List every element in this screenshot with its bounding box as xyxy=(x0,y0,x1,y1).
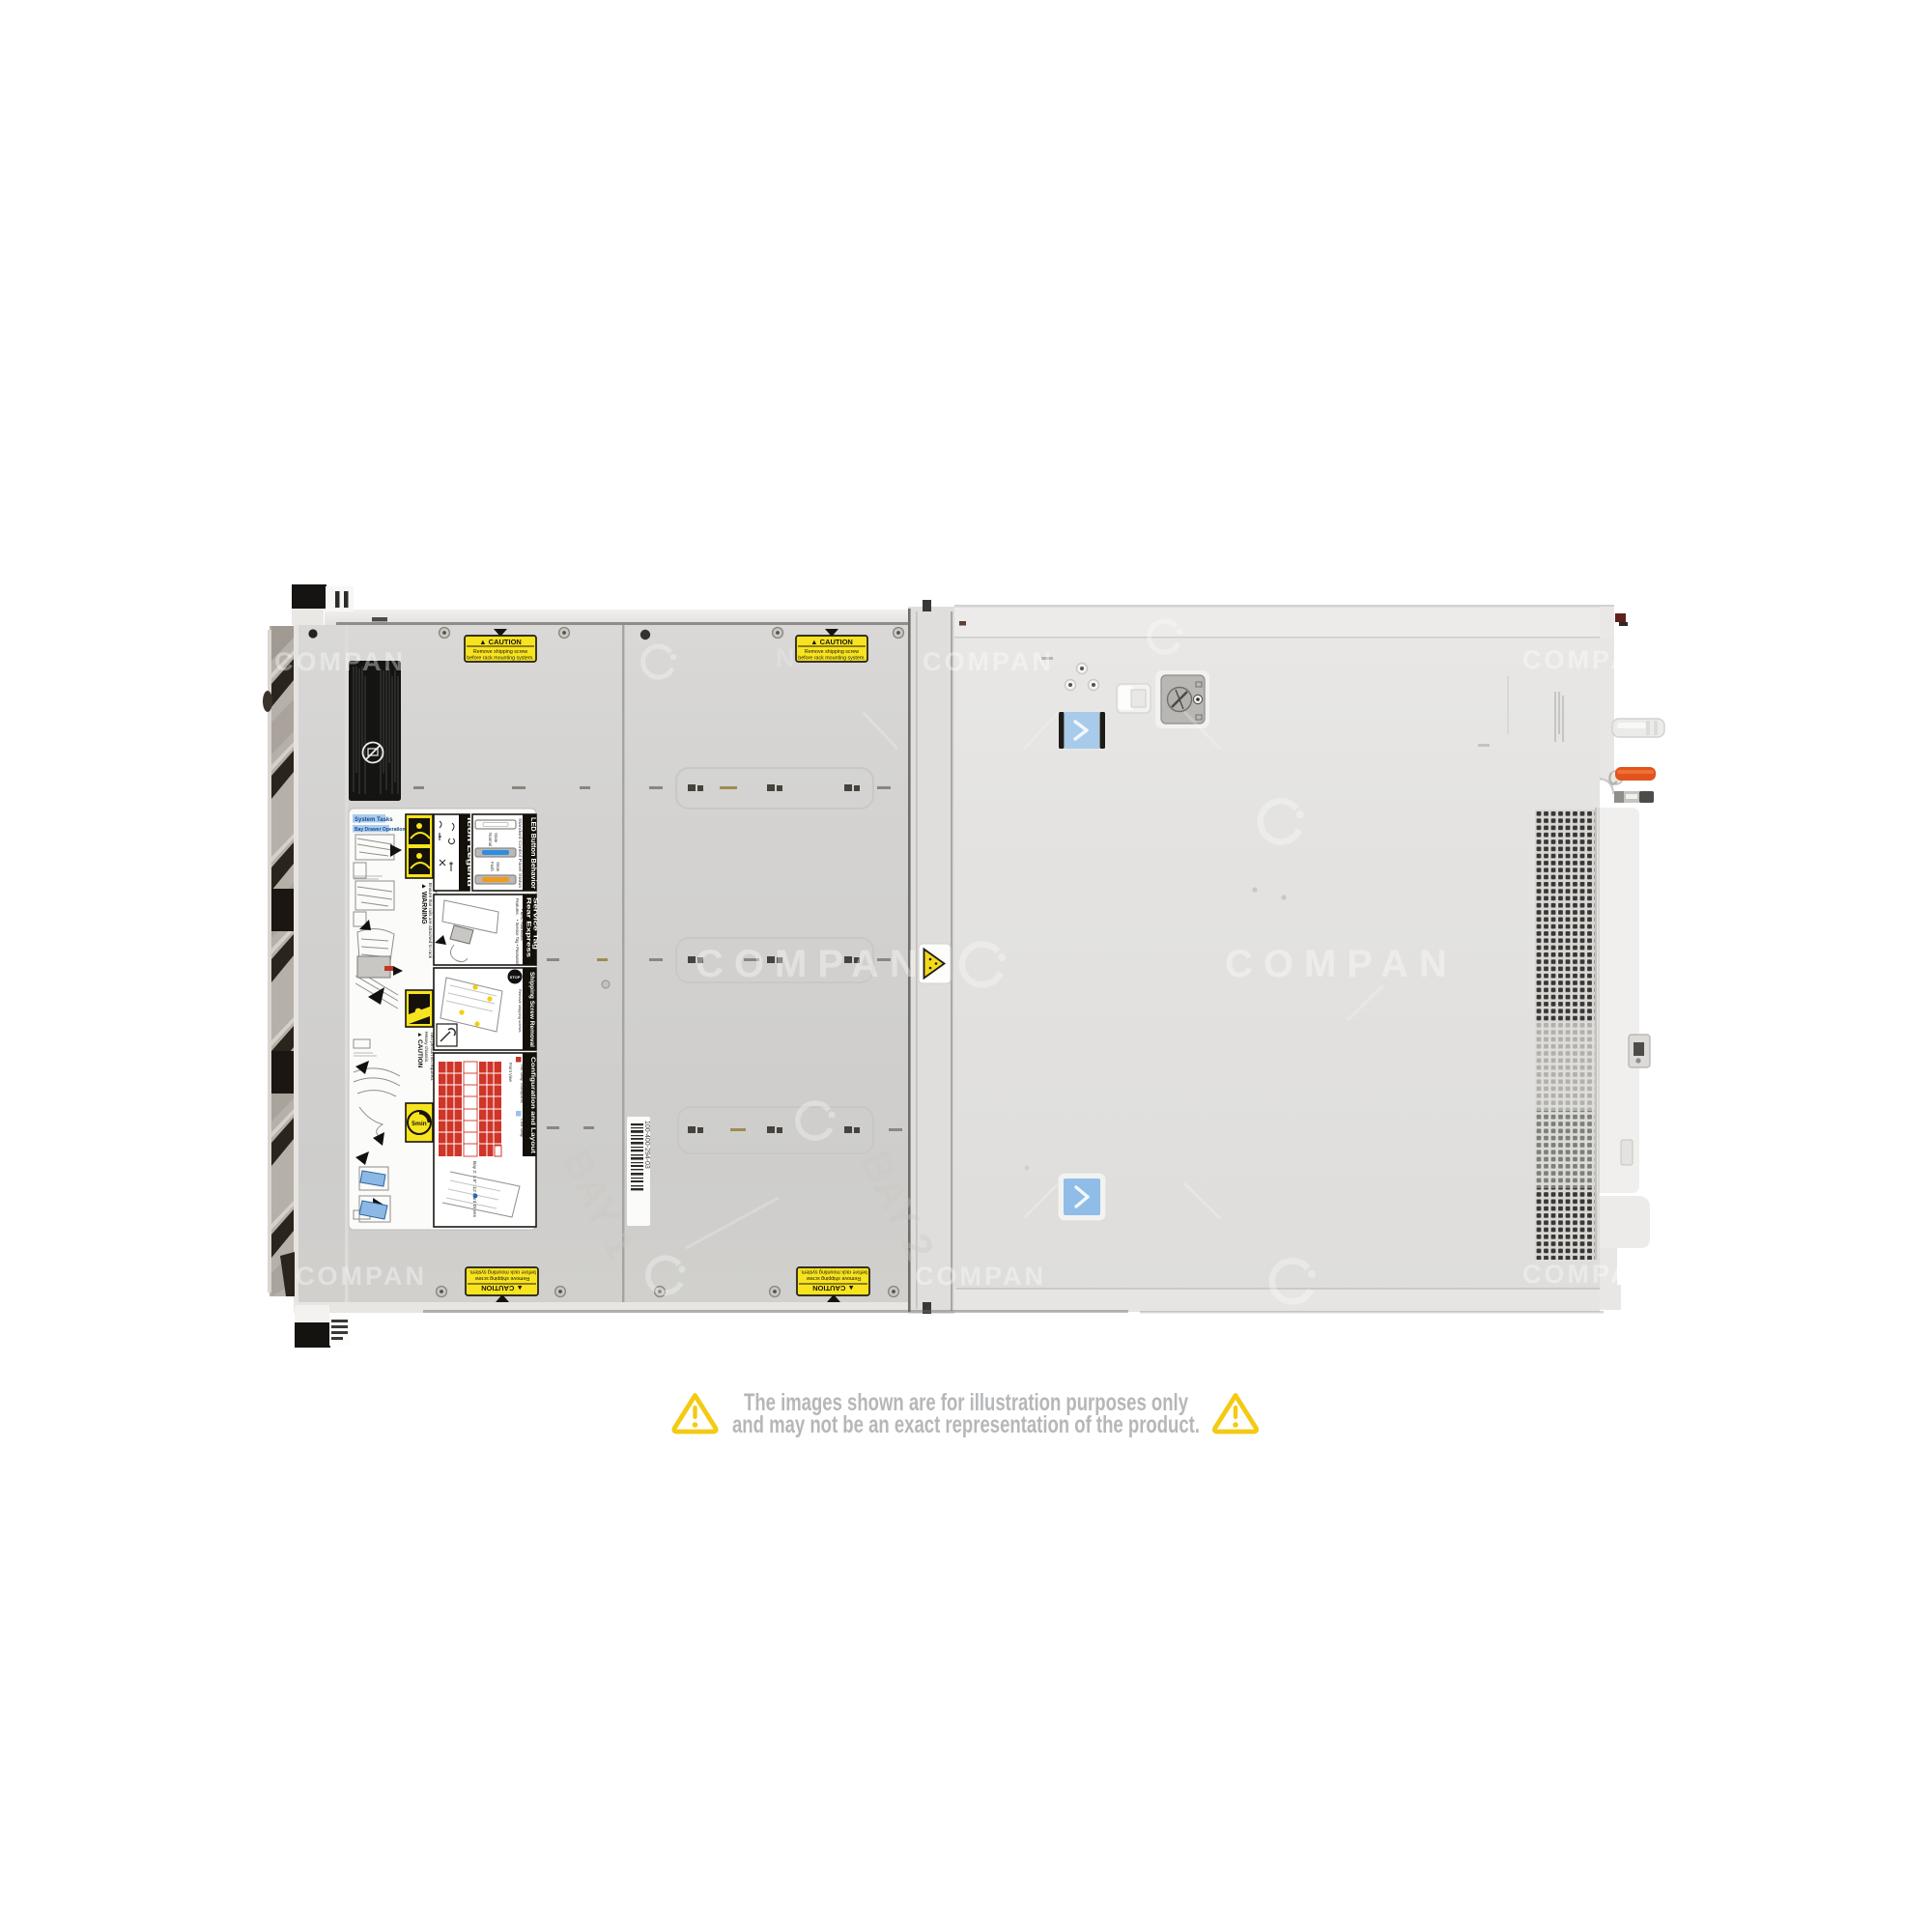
svg-text:• Service Tag • Password: • Service Tag • Password xyxy=(515,920,520,965)
svg-text:Shipping Screw Removal: Shipping Screw Removal xyxy=(528,972,535,1047)
svg-text:▲ WARNING: ▲ WARNING xyxy=(420,883,427,924)
svg-text:Remove shipping screw: Remove shipping screw xyxy=(475,1275,529,1281)
svg-text:▲ CAUTION: ▲ CAUTION xyxy=(812,1284,855,1293)
svg-text:COMPAN: COMPAN xyxy=(696,943,928,985)
svg-text:Heavy chassis.: Heavy chassis. xyxy=(423,1032,429,1063)
svg-text:▲ CAUTION: ▲ CAUTION xyxy=(481,1284,524,1293)
svg-text:Service Tag: Service Tag xyxy=(532,897,539,950)
svg-text:COMPAN: COMPAN xyxy=(1522,645,1654,674)
svg-text:Features:: Features: xyxy=(515,898,520,916)
svg-text:Remove shipping screws: Remove shipping screws xyxy=(518,989,523,1032)
svg-text:COMPAN: COMPAN xyxy=(296,1262,427,1291)
svg-text:before rack mounting system.: before rack mounting system. xyxy=(800,1269,867,1275)
svg-text:Normal: Normal xyxy=(488,833,493,846)
svg-text:100-400-294-03: 100-400-294-03 xyxy=(643,1121,650,1169)
svg-text:State: State xyxy=(494,833,498,843)
svg-text:5min: 5min xyxy=(412,1121,426,1127)
svg-text:before rack mounting system.: before rack mounting system. xyxy=(467,656,533,662)
svg-text:COMPAN: COMPAN xyxy=(915,1262,1046,1291)
svg-text:Remove shipping screw: Remove shipping screw xyxy=(805,649,859,655)
svg-text:Ensure that rails are attached: Ensure that rails are attached to rack xyxy=(428,883,433,959)
svg-text:▲ CAUTION: ▲ CAUTION xyxy=(810,638,853,646)
svg-text:Remove shipping screw: Remove shipping screw xyxy=(473,649,527,655)
svg-text:▲ CAUTION: ▲ CAUTION xyxy=(479,638,522,646)
svg-text:before rack mounting system.: before rack mounting system. xyxy=(798,656,865,662)
svg-text:COMPAN: COMPAN xyxy=(1522,1260,1654,1289)
svg-text:Fash: Fash xyxy=(490,862,495,871)
svg-text:Cold Swap: Cold Swap xyxy=(520,1119,525,1138)
svg-text:Standard Control Panel Status: Standard Control Panel Status xyxy=(518,818,523,889)
svg-text:and may not be an exact repres: and may not be an exact representation o… xyxy=(732,1411,1200,1438)
svg-text:Front View: Front View xyxy=(508,1063,513,1083)
svg-text:COMPAN: COMPAN xyxy=(1225,943,1458,985)
svg-text:▲ CAUTION: ▲ CAUTION xyxy=(416,1032,423,1068)
svg-text:Configuration and Layout: Configuration and Layout xyxy=(529,1057,536,1154)
svg-text:before rack mounting system.: before rack mounting system. xyxy=(469,1269,535,1275)
svg-text:Icon Legend: Icon Legend xyxy=(466,817,472,887)
svg-text:Hot Swap Touchpoints: Hot Swap Touchpoints xyxy=(520,1065,525,1103)
svg-text:Rear Express: Rear Express xyxy=(526,897,532,958)
svg-text:COMPAN: COMPAN xyxy=(274,647,406,676)
svg-text:State: State xyxy=(496,862,500,872)
svg-text:Remove shipping screw: Remove shipping screw xyxy=(807,1275,861,1281)
svg-text:• MAC Addresses: • MAC Addresses xyxy=(520,909,525,941)
svg-text:Bay Drawer Operation: Bay Drawer Operation xyxy=(355,827,406,833)
svg-text:LED Button Behavior: LED Button Behavior xyxy=(529,817,536,889)
svg-text:COMPAN: COMPAN xyxy=(923,647,1054,676)
svg-text:System Tasks: System Tasks xyxy=(355,817,393,823)
svg-text:N: N xyxy=(776,643,798,672)
svg-text:STOP: STOP xyxy=(510,975,521,980)
